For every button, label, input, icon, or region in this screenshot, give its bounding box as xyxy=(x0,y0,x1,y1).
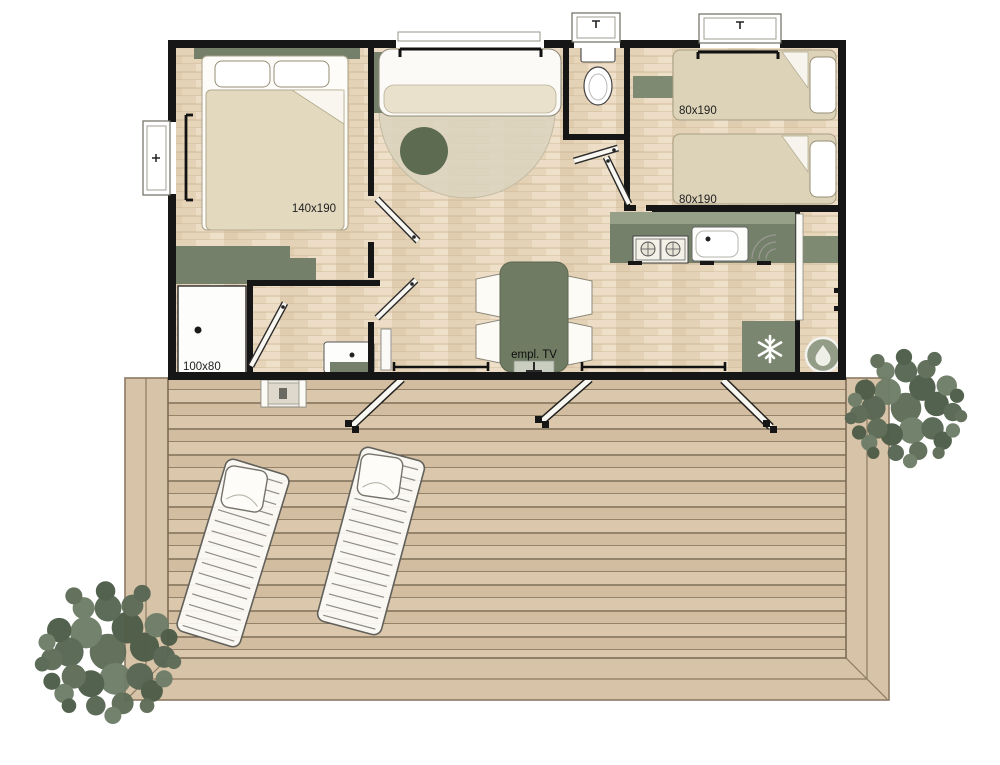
bed-size-label: 140x190 xyxy=(292,203,336,215)
single-bed-1: 80x190 xyxy=(673,50,836,120)
pillow xyxy=(810,141,836,197)
pillow xyxy=(274,61,329,87)
shower-drain xyxy=(195,327,202,334)
pillow xyxy=(810,57,836,113)
chair xyxy=(568,276,592,319)
faucet xyxy=(706,237,711,242)
floor-plan-page: 140x190 100x80 empl. TV xyxy=(0,0,1000,765)
pillow xyxy=(215,61,270,87)
kitchen xyxy=(610,212,796,265)
wc xyxy=(581,45,615,105)
hob xyxy=(633,236,688,263)
washbasin xyxy=(324,342,374,374)
single-bed-2: 80x190 xyxy=(673,134,836,206)
window-wc xyxy=(572,13,620,42)
tv-spot-label: empl. TV xyxy=(511,349,557,361)
fridge xyxy=(742,321,799,377)
window-master-bedroom xyxy=(143,121,170,195)
storage-cabinet xyxy=(801,236,838,263)
bed2-size-label: 80x190 xyxy=(679,194,717,206)
sliding-door xyxy=(796,214,803,320)
window-twin-bedroom xyxy=(699,14,781,43)
toilet-bowl xyxy=(584,67,612,105)
chair xyxy=(568,322,592,365)
chair xyxy=(476,274,500,317)
chair xyxy=(476,320,500,363)
floor-plan-canvas: 140x190 100x80 empl. TV xyxy=(0,0,1000,765)
deck-step-box xyxy=(261,380,306,407)
window-sofa xyxy=(398,32,540,41)
double-bed: 140x190 xyxy=(202,56,348,230)
shower-size-label: 100x80 xyxy=(183,361,221,373)
open-door-panel xyxy=(381,329,391,370)
shower-room: 100x80 xyxy=(178,286,246,374)
wardrobe xyxy=(176,246,290,284)
kitchen-upper-band xyxy=(610,212,796,226)
sofa xyxy=(372,49,561,116)
coffee-table xyxy=(400,127,448,175)
bed1-size-label: 80x190 xyxy=(679,105,717,117)
deck-terrace xyxy=(125,378,889,700)
nightstand xyxy=(633,76,673,98)
